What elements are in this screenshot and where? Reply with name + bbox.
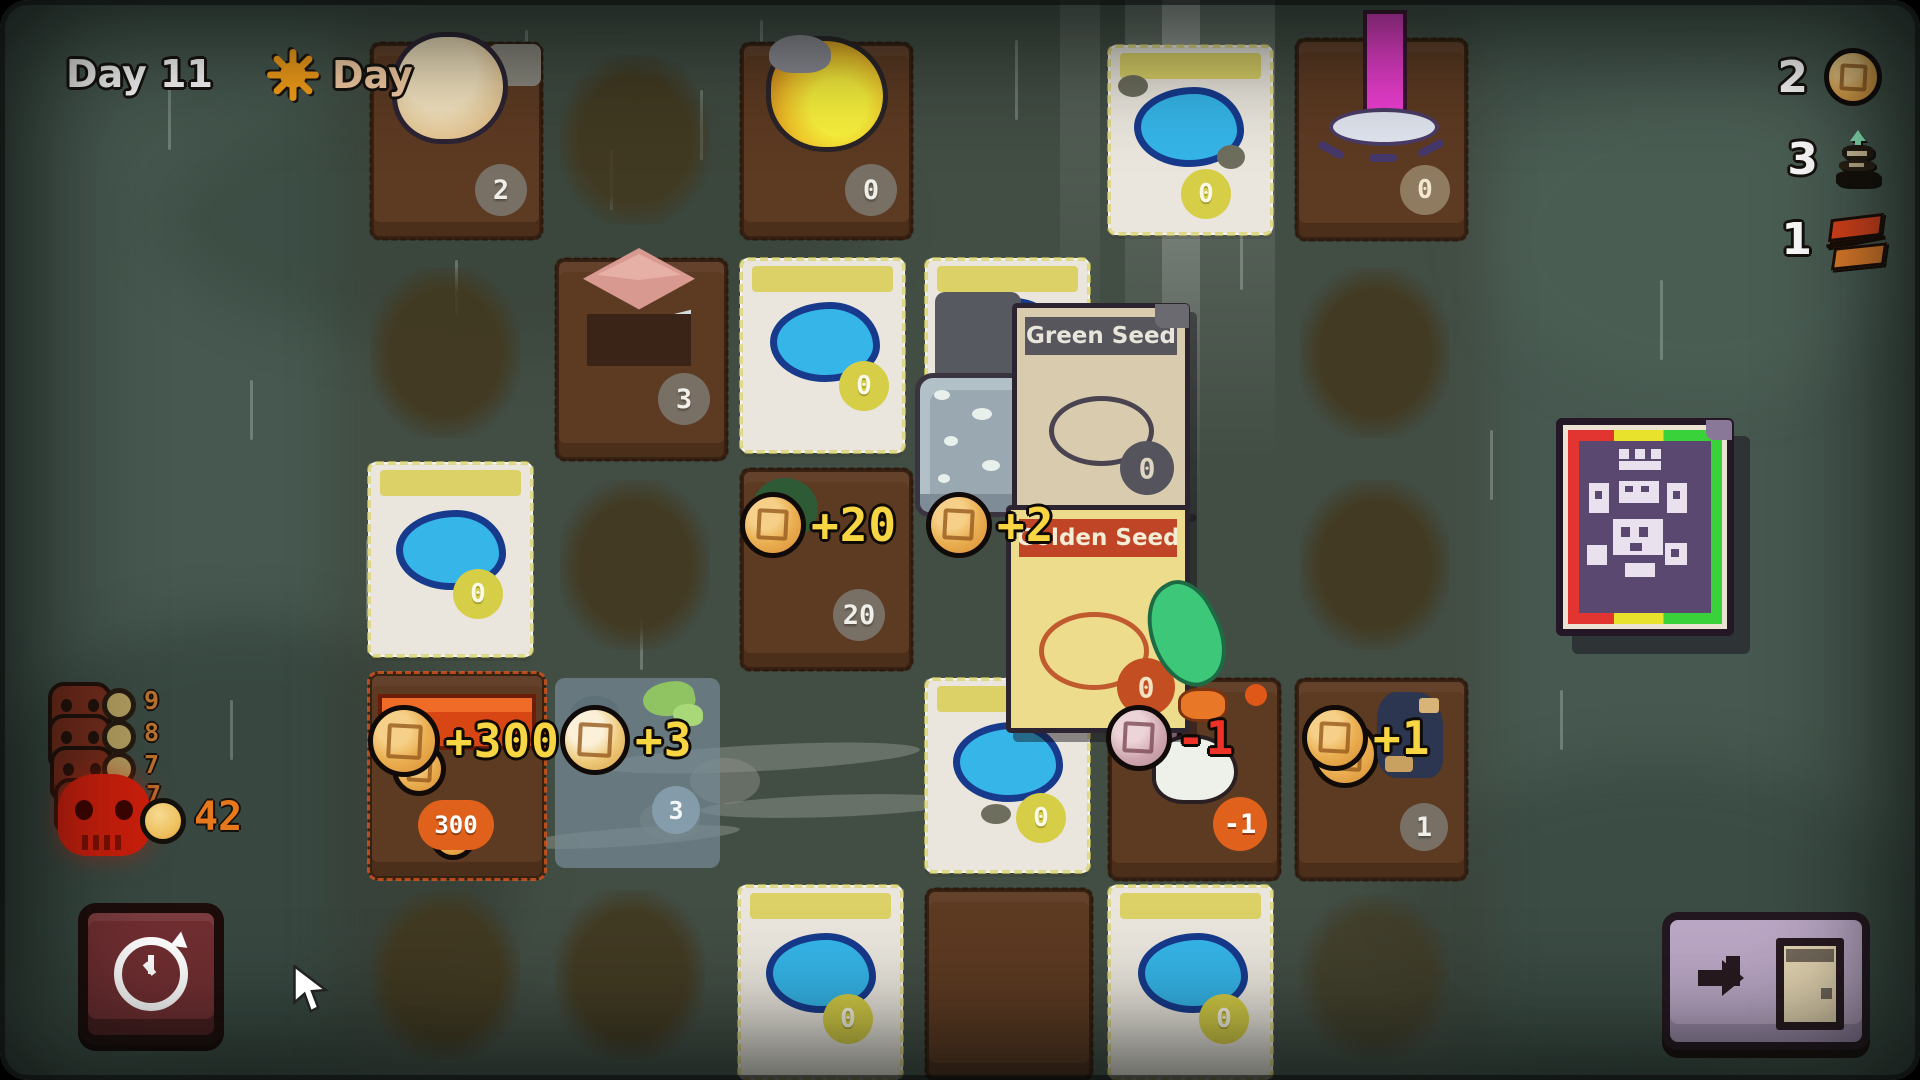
tile-count-badge: 3	[658, 373, 710, 425]
rain-streak	[1490, 430, 1493, 500]
card-title-band: Green Seed	[1025, 317, 1177, 355]
tile-count-badge: 0	[845, 164, 897, 216]
rain-streak	[1015, 40, 1018, 120]
reward-amount: +2	[997, 498, 1054, 552]
tile-empty[interactable]	[1300, 268, 1450, 438]
tile-dirt[interactable]	[925, 888, 1093, 1080]
arrow-right-icon	[1698, 970, 1740, 986]
coin-icon	[926, 492, 992, 558]
upcoming-cost: 9	[144, 686, 159, 715]
bricks-icon	[1828, 212, 1882, 266]
seedling-icon	[1834, 130, 1882, 188]
resource-coins: 2	[1777, 48, 1882, 106]
dirt-spot	[1118, 75, 1148, 97]
resource-count: 1	[1781, 214, 1812, 265]
book-rainbow-border	[1568, 430, 1722, 624]
tile-puddle[interactable]: 0	[368, 462, 533, 657]
house-body	[587, 314, 691, 366]
upcoming-cost: 8	[144, 718, 159, 747]
book-cover-art	[1579, 441, 1711, 613]
book-corner-notch	[1706, 420, 1732, 440]
reward-amount: +300	[445, 714, 560, 768]
coin-icon	[740, 492, 806, 558]
tile-count-badge: 0	[453, 569, 503, 619]
tile-count-badge: 0	[823, 994, 873, 1044]
coin-icon	[140, 798, 186, 844]
tile-empty[interactable]	[560, 480, 710, 650]
rain-streak	[1660, 280, 1663, 360]
beacon-root	[1317, 140, 1345, 160]
tile-puddle[interactable]: 0	[1108, 885, 1273, 1080]
game-screen: 2 0 0 0 3 0 0	[0, 0, 1920, 1080]
reward-amount: +20	[811, 498, 897, 552]
reward-floater-worker: +1	[1302, 705, 1430, 771]
coin-icon	[102, 688, 136, 722]
beacon-root	[1369, 154, 1397, 162]
coin-icon	[560, 705, 630, 775]
tile-puddle[interactable]: 0	[740, 258, 905, 453]
glow-lamp-icon	[766, 36, 888, 152]
wind-wisp	[700, 790, 961, 821]
tile-count-badge: 0	[1400, 165, 1450, 215]
door-icon	[1776, 938, 1844, 1030]
tile-empty[interactable]	[1300, 480, 1450, 650]
tile-empty[interactable]	[555, 890, 705, 1060]
tile-house[interactable]: 3	[555, 258, 728, 461]
house-roof-icon	[583, 248, 695, 312]
book-frame	[1563, 425, 1727, 629]
reward-amount: +1	[1373, 711, 1430, 765]
rain-streak	[1560, 690, 1563, 750]
day-counter: Day 11	[66, 52, 213, 96]
tile-empty[interactable]	[560, 55, 710, 225]
tile-count-badge: 0	[1181, 169, 1231, 219]
card-count-badge: 0	[1120, 441, 1174, 495]
penalty-floater-pig: -1	[1106, 705, 1234, 771]
mouse-cursor	[292, 965, 332, 1019]
beacon-collar	[1329, 108, 1439, 146]
coin-icon	[1302, 705, 1368, 771]
tile-count-badge: 0	[1016, 793, 1066, 843]
tile-beacon[interactable]: 0	[1295, 38, 1468, 241]
tile-empty[interactable]	[370, 268, 520, 438]
sun-icon	[280, 62, 306, 88]
coin-icon	[1106, 705, 1172, 771]
tile-count-badge: -1	[1213, 797, 1267, 851]
reward-amount: +3	[635, 713, 692, 767]
tile-count-badge: 1	[1400, 803, 1448, 851]
orange-fruit	[1245, 684, 1267, 706]
rain-streak	[250, 380, 253, 440]
upcoming-cost: 7	[144, 750, 159, 779]
card-corner-notch	[1155, 304, 1189, 328]
resource-panel: 2 3 1	[1777, 48, 1882, 266]
tile-lamp[interactable]: 0	[740, 42, 913, 240]
end-day-button[interactable]	[1662, 912, 1870, 1050]
resource-seeds: 3	[1787, 130, 1882, 188]
tile-count-badge: 0	[1199, 994, 1249, 1044]
resource-bricks: 1	[1781, 212, 1882, 266]
reward-floater-plant: +3	[560, 705, 692, 775]
tile-empty[interactable]	[1300, 895, 1450, 1060]
history-clock-icon	[114, 937, 188, 1011]
phase-indicator: Day	[268, 50, 413, 100]
water-puddle-icon	[953, 722, 1063, 802]
undo-history-button[interactable]	[78, 903, 224, 1045]
reward-floater-seed: +2	[926, 492, 1054, 558]
phase-label: Day	[332, 53, 413, 97]
coin-icon	[102, 720, 136, 754]
coin-icon	[1824, 48, 1882, 106]
tile-count-badge: 0	[839, 361, 889, 411]
tile-count-badge: 3	[652, 786, 700, 834]
tile-count-badge: 300	[418, 800, 494, 850]
coin-icon	[368, 705, 440, 777]
penalty-amount: -1	[1177, 711, 1234, 765]
tile-puddle[interactable]: 0	[738, 885, 903, 1080]
tile-empty[interactable]	[370, 890, 520, 1060]
dirt-spot	[981, 804, 1011, 824]
tile-count-badge: 2	[475, 164, 527, 216]
threat-panel: 9 8 7 7 42	[44, 682, 284, 872]
tile-puddle[interactable]: 0	[1108, 45, 1273, 235]
resource-count: 2	[1777, 52, 1808, 103]
reward-floater-market: +300	[368, 705, 560, 777]
card-green-seed[interactable]: Green Seed 0	[1012, 303, 1190, 513]
dirt-spot	[1217, 145, 1245, 169]
reward-floater-plot: +20	[740, 492, 897, 558]
card-title: Green Seed	[1026, 323, 1176, 349]
almanac-book[interactable]	[1556, 418, 1734, 636]
resource-count: 3	[1787, 134, 1818, 185]
skull-icon	[58, 774, 150, 856]
tile-count-badge: 20	[833, 589, 885, 641]
coin-total: 42	[194, 794, 242, 840]
